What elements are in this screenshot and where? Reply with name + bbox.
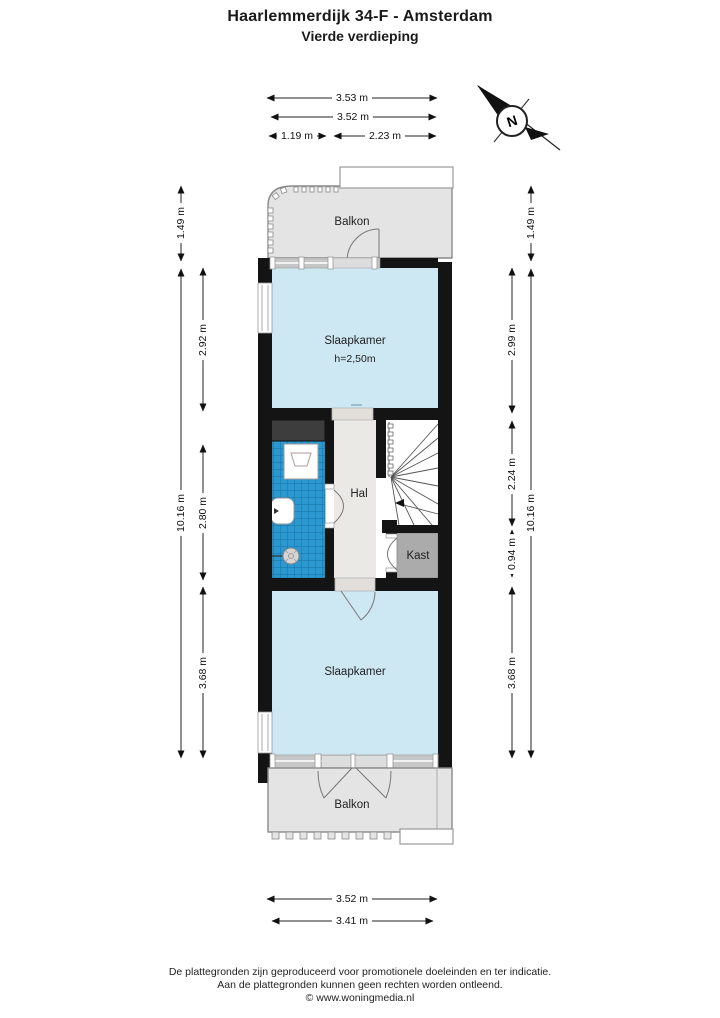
floorplan-drawing: N bbox=[0, 0, 720, 1018]
room-label-balkon-bottom: Balkon bbox=[334, 799, 369, 811]
compass-icon: N bbox=[477, 85, 560, 150]
toilet-icon bbox=[271, 498, 294, 524]
room-label-kast: Kast bbox=[406, 550, 429, 562]
room-label-balkon-top: Balkon bbox=[334, 216, 369, 228]
room-label-slaapkamer-top: Slaapkamer bbox=[324, 335, 385, 347]
copyright: © www.woningmedia.nl bbox=[0, 992, 720, 1005]
dim-top-4: 2.23 m bbox=[365, 130, 405, 142]
stairs-floor bbox=[386, 420, 438, 525]
dim-right-5: 3.68 m bbox=[506, 653, 518, 693]
balcony-bottom-railing-icon bbox=[272, 832, 391, 839]
dim-top-3: 1.19 m bbox=[277, 130, 317, 142]
dim-left-2: 2.92 m bbox=[197, 320, 209, 360]
shaft bbox=[270, 420, 325, 441]
dim-bottom-1: 3.52 m bbox=[332, 893, 372, 905]
dim-left-4: 3.68 m bbox=[197, 653, 209, 693]
room-label-ceiling-height: h=2,50m bbox=[334, 353, 375, 365]
room-label-slaapkamer-bottom: Slaapkamer bbox=[324, 666, 385, 678]
dim-right-1: 1.49 m bbox=[525, 203, 537, 243]
washbasin-icon bbox=[284, 444, 318, 479]
dim-bottom-2: 3.41 m bbox=[332, 915, 372, 927]
balcony-top-ledge bbox=[340, 167, 453, 188]
balcony-top bbox=[268, 167, 453, 261]
disclaimer-line-2: Aan de plattegronden kunnen geen rechten… bbox=[0, 979, 720, 992]
dim-left-1: 1.49 m bbox=[175, 203, 187, 243]
disclaimer: De plattegronden zijn geproduceerd voor … bbox=[0, 966, 720, 1005]
window-left-top bbox=[258, 283, 272, 333]
bathroom bbox=[270, 420, 325, 578]
dim-right-2: 2.99 m bbox=[506, 320, 518, 360]
dim-left-5: 10.16 m bbox=[175, 490, 187, 536]
window-left-bottom bbox=[258, 712, 272, 753]
dim-right-4: 0.94 m bbox=[506, 534, 518, 574]
disclaimer-line-1: De plattegronden zijn geproduceerd voor … bbox=[0, 966, 720, 979]
room-label-hal: Hal bbox=[350, 488, 367, 500]
dim-right-6: 10.16 m bbox=[525, 490, 537, 536]
floorplan-page: Haarlemmerdijk 34-F - Amsterdam Vierde v… bbox=[0, 0, 720, 1018]
dim-top-2: 3.52 m bbox=[333, 111, 373, 123]
dim-top-1: 3.53 m bbox=[332, 92, 372, 104]
closet-door-icon bbox=[386, 534, 397, 572]
window-row-bottom bbox=[270, 754, 438, 769]
dim-right-3: 2.24 m bbox=[506, 454, 518, 494]
balcony-bottom-ledge bbox=[400, 829, 453, 844]
dim-left-3: 2.80 m bbox=[197, 493, 209, 533]
